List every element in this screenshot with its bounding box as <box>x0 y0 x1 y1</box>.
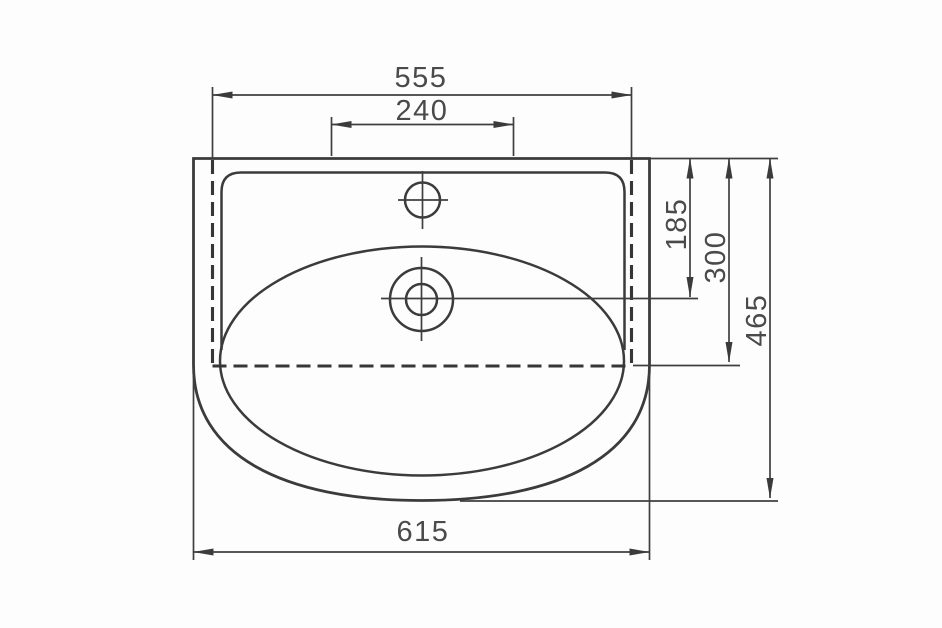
technical-drawing-canvas: 555 240 185 300 465 <box>0 0 942 628</box>
dim-label-615: 615 <box>397 516 450 548</box>
dim-label-555: 555 <box>395 62 448 94</box>
dimension-faucet-hole-spacing: 240 <box>332 95 514 156</box>
dimension-overall-width: 615 <box>194 368 650 560</box>
dimension-right-side-group: 185 300 465 <box>460 159 778 502</box>
drawing-page: 555 240 185 300 465 <box>0 0 942 628</box>
dim-label-240: 240 <box>396 95 449 127</box>
dim-label-300: 300 <box>700 231 732 284</box>
faucet-hole-icon <box>398 171 448 229</box>
dim-label-465: 465 <box>741 294 773 347</box>
dim-label-185: 185 <box>661 198 693 251</box>
